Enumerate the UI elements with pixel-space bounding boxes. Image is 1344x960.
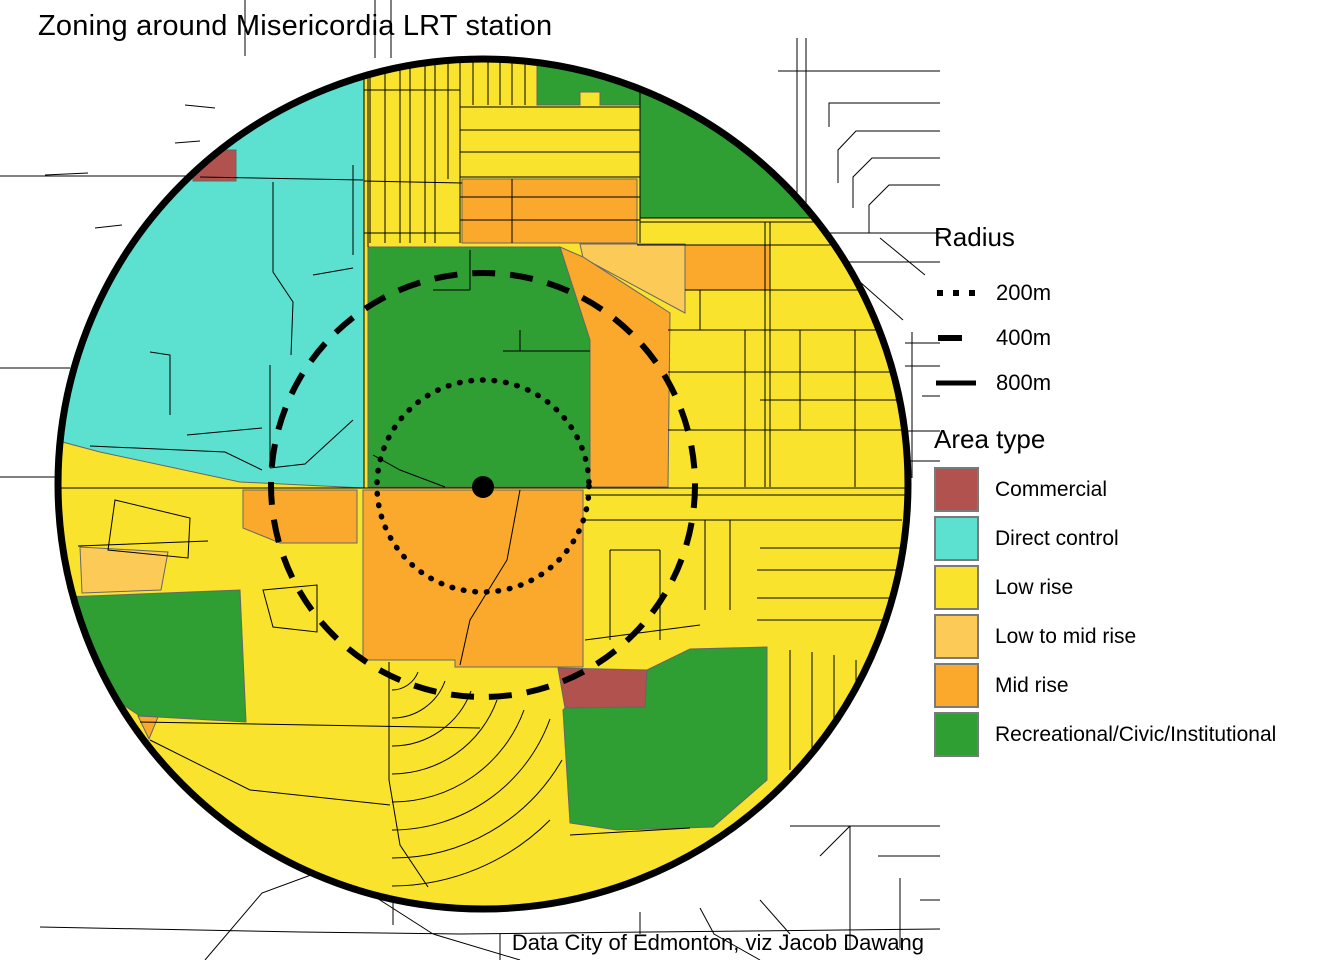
zone-commercial-south	[558, 668, 647, 708]
radius-label: 400m	[996, 325, 1051, 351]
dashed-line-sample-icon	[934, 333, 980, 343]
area-legend-row-recreational: Recreational/Civic/Institutional	[934, 712, 1276, 757]
low-rise-swatch	[934, 565, 979, 610]
area-label: Low to mid rise	[995, 625, 1136, 649]
zone-mid-rise-west-of-center	[243, 490, 357, 543]
area-legend-row-low-rise: Low rise	[934, 565, 1276, 610]
page-title: Zoning around Misericordia LRT station	[38, 10, 552, 43]
zone-mid-rise-north-band	[462, 179, 637, 243]
area-label: Recreational/Civic/Institutional	[995, 723, 1276, 747]
zoning-map-page: Zoning around Misericordia LRT station R…	[0, 0, 1344, 960]
area-legend-row-commercial: Commercial	[934, 467, 1276, 512]
radius-legend-row-400m: 400m	[934, 326, 1051, 350]
zone-rec-northeast-wedge	[640, 40, 900, 218]
radius-legend-row-200m: 200m	[934, 281, 1051, 305]
area-legend-row-direct-control: Direct control	[934, 516, 1276, 561]
area-label: Low rise	[995, 576, 1073, 600]
station-dot	[472, 476, 494, 498]
zone-rec-southwest-park	[40, 590, 246, 722]
direct-control-swatch	[934, 516, 979, 561]
dotted-line-sample-icon	[934, 288, 980, 298]
commercial-swatch	[934, 467, 979, 512]
area-legend-row-low-to-mid-rise: Low to mid rise	[934, 614, 1276, 659]
data-attribution: Data City of Edmonton, viz Jacob Dawang	[0, 930, 924, 956]
low-to-mid-rise-swatch	[934, 614, 979, 659]
mid-rise-swatch	[934, 663, 979, 708]
radius-legend-row-800m: 800m	[934, 371, 1051, 395]
zone-mid-rise-south-of-center	[363, 490, 583, 667]
area-label: Commercial	[995, 478, 1107, 502]
area-legend-row-mid-rise: Mid rise	[934, 663, 1276, 708]
radius-legend-title: Radius	[934, 222, 1051, 253]
solid-line-sample-icon	[934, 378, 980, 388]
area-legend-title: Area type	[934, 424, 1276, 455]
zone-low-to-mid-west	[80, 547, 168, 593]
radius-label: 200m	[996, 280, 1051, 306]
area-type-legend: Area type Commercial Direct control Low …	[934, 424, 1276, 757]
radius-label: 800m	[996, 370, 1051, 396]
area-label: Direct control	[995, 527, 1119, 551]
radius-legend: Radius 200m 400m 800m	[934, 222, 1051, 395]
zone-rec-hospital	[368, 247, 590, 487]
zone-mid-rise-northeast-rect	[685, 245, 770, 290]
recreational-swatch	[934, 712, 979, 757]
area-label: Mid rise	[995, 674, 1069, 698]
